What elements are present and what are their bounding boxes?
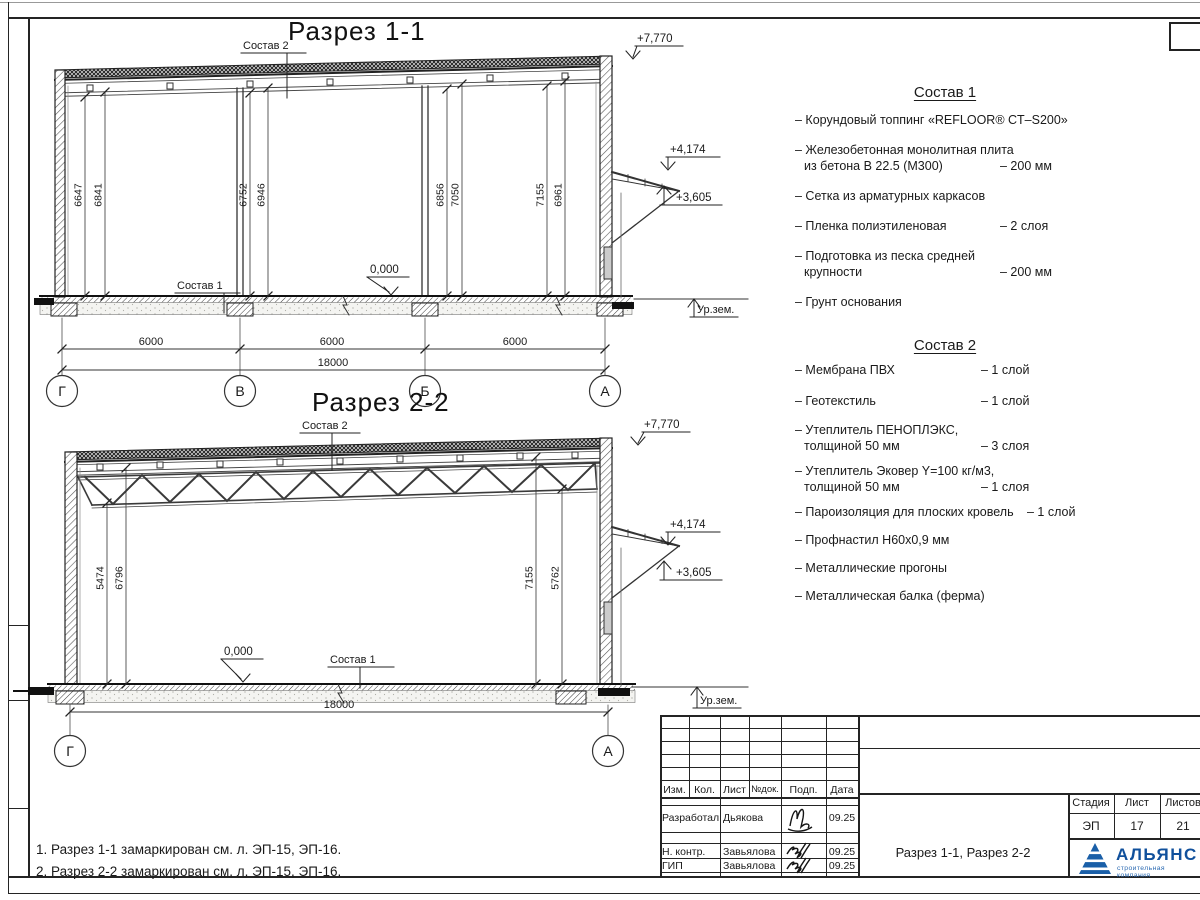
list-item: – Подготовка из песка средней крупности … [795, 248, 1100, 280]
list-item: – Пароизоляция для плоских кровель – 1 с… [795, 504, 1100, 520]
item-text: – Металлические прогоны [795, 561, 947, 575]
sostav1-heading: Состав 1 [795, 84, 1095, 101]
note-line: 1. Разрез 1-1 замаркирован см. л. ЭП-15,… [36, 839, 341, 861]
tb-doc-title: Разрез 1-1, Разрез 2-2 [860, 845, 1066, 860]
tb-col-data: Дата [826, 784, 858, 796]
item-qty: – 3 слоя [981, 438, 1029, 454]
wall-left [65, 452, 77, 684]
elevation-label: +4,174 [670, 519, 706, 531]
section-2-2: 5474 6796 7155 5762 18000 Г А +7,770 +4,… [14, 419, 748, 767]
item-text: – Грунт основания [795, 295, 902, 309]
item-text: толщиной 50 мм [804, 439, 900, 453]
tb-col-kol: Кол. [689, 784, 720, 796]
dim-label: 6000 [320, 336, 344, 348]
elevation-label: +3,605 [676, 567, 712, 579]
item-text: – Железобетонная монолитная плита [795, 143, 1014, 157]
tb-col-doc: №док. [749, 784, 781, 795]
tb-role: Н. контр. [662, 846, 705, 858]
drawing-sheet: { "s1": { "title": "Разрез 1-1", "labels… [0, 0, 1200, 900]
dim-label: 6647 [73, 183, 85, 207]
tb-date: 09.25 [826, 860, 858, 872]
ground-level-label: Ур.зем. [700, 695, 737, 707]
axis-label: В [235, 383, 244, 399]
signature [784, 804, 824, 832]
dim-label: 6796 [114, 566, 126, 590]
dim-label: 6000 [139, 336, 163, 348]
dim-label: 6841 [93, 183, 105, 207]
axis-label: Г [66, 743, 74, 759]
list-item: – Мембрана ПВХ – 1 слой [795, 362, 1100, 378]
item-text: толщиной 50 мм [804, 480, 900, 494]
note-line: 2. Разрез 2-2 замаркирован см. л. ЭП-15,… [36, 861, 341, 883]
tb-col-izm: Изм. [660, 784, 689, 796]
elevation-label: +7,770 [637, 33, 673, 45]
notes-block: 1. Разрез 1-1 замаркирован см. л. ЭП-15,… [36, 839, 341, 882]
list-item: – Металлическая балка (ферма) [795, 588, 1100, 604]
tb-sheets-value: 21 [1160, 819, 1200, 833]
tb-role: Разработал [662, 812, 719, 824]
axis-bubbles: Г А [55, 736, 624, 767]
item-text: – Утеплитель ПЕНОПЛЭКС, [795, 423, 958, 437]
dim-label: 18000 [318, 357, 349, 369]
elevation-label: +7,770 [644, 419, 680, 431]
signature [784, 857, 824, 874]
item-text: – Пленка полиэтиленовая [795, 219, 947, 233]
item-text: – Мембрана ПВХ [795, 363, 895, 377]
tb-sheet-value: 17 [1114, 819, 1160, 833]
list-item: – Пленка полиэтиленовая – 2 слоя [795, 218, 1100, 234]
item-text: – Металлическая балка (ферма) [795, 589, 985, 603]
list-item: – Железобетонная монолитная плита из бет… [795, 142, 1100, 174]
ground-level-label: Ур.зем. [697, 304, 734, 316]
elevation-label: +4,174 [670, 144, 706, 156]
item-text: из бетона В 22.5 (М300) [804, 159, 943, 173]
item-text: – Корундовый топпинг «REFLOOR® CT–S200» [795, 113, 1068, 127]
dim-label: 6000 [503, 336, 527, 348]
company-logo-text: АЛЬЯНС [1116, 845, 1198, 865]
list-item: – Корундовый топпинг «REFLOOR® CT–S200» [795, 112, 1100, 128]
item-text: – Подготовка из песка средней [795, 249, 975, 263]
section-1-title: Разрез 1-1 [288, 16, 426, 47]
tb-stage-value: ЭП [1068, 819, 1114, 833]
dim-label: 6946 [256, 183, 268, 207]
canopy [604, 527, 679, 686]
dim-label: 6856 [435, 183, 447, 207]
tb-role: ГИП [662, 860, 683, 872]
wall-left [55, 70, 65, 297]
dim-ticks [103, 453, 566, 688]
axis-label: А [600, 383, 610, 399]
item-qty: – 1 слой [981, 393, 1029, 409]
tb-name: Дьякова [723, 812, 763, 824]
dim-label: 7155 [535, 183, 547, 207]
item-text: – Геотекстиль [795, 394, 876, 408]
wall-right [600, 438, 612, 684]
item-qty: – 200 мм [1000, 158, 1052, 174]
elevation-label: 0,000 [224, 646, 253, 658]
tb-col-podp: Подп. [781, 784, 826, 796]
callout-label: Состав 2 [243, 40, 289, 52]
tb-name: Завьялова [723, 860, 775, 872]
dim-label: 5474 [95, 566, 107, 590]
list-item: – Сетка из арматурных каркасов [795, 188, 1100, 204]
list-item: – Металлические прогоны [795, 560, 1100, 576]
tb-date: 09.25 [826, 812, 858, 824]
tb-sheet-label: Лист [1114, 797, 1160, 809]
callout-label: Состав 1 [177, 280, 223, 292]
tb-sheets-label: Листов [1160, 797, 1200, 809]
section-2-title: Разрез 2-2 [312, 387, 450, 418]
tb-date: 09.25 [826, 846, 858, 858]
elevation-label: +3,605 [676, 192, 712, 204]
list-item: – Грунт основания [795, 294, 1100, 310]
item-text: – Профнастил Н60х0,9 мм [795, 533, 949, 547]
company-logo-icon [1078, 842, 1112, 875]
item-qty: – 1 слой [1027, 504, 1075, 520]
list-item: – Утеплитель ПЕНОПЛЭКС, толщиной 50 мм –… [795, 422, 1100, 454]
company-logo-subtext: строительная компания [1117, 865, 1200, 879]
elevation-marks [221, 432, 741, 708]
dim-label: 5762 [550, 566, 562, 590]
item-text: – Утеплитель Эковер Y=100 кг/м3, [795, 464, 994, 478]
item-qty: – 1 слой [981, 362, 1029, 378]
item-qty: – 2 слоя [1000, 218, 1048, 234]
item-qty: – 200 мм [1000, 264, 1052, 280]
tb-col-list: Лист [720, 784, 749, 796]
sostav2-heading: Состав 2 [795, 337, 1095, 354]
callout-label: Состав 1 [330, 654, 376, 666]
list-item: – Профнастил Н60х0,9 мм [795, 532, 1100, 548]
dim-label: 18000 [324, 699, 355, 711]
axis-label: Г [58, 383, 66, 399]
dim-label: 6961 [553, 183, 565, 207]
callout-label: Состав 2 [302, 420, 348, 432]
dim-label: 6752 [238, 183, 250, 207]
elevation-label: 0,000 [370, 264, 399, 276]
axis-label: А [603, 743, 613, 759]
item-qty: – 1 слоя [981, 479, 1029, 495]
vertical-dims [85, 81, 565, 296]
list-item: – Утеплитель Эковер Y=100 кг/м3, толщино… [795, 463, 1100, 495]
item-text: – Пароизоляция для плоских кровель [795, 505, 1014, 519]
tb-stage-label: Стадия [1068, 797, 1114, 809]
dim-ticks [81, 77, 569, 300]
section-1-1: 6647 6841 6752 6946 6856 7050 7155 6961 … [34, 33, 748, 407]
item-text: – Сетка из арматурных каркасов [795, 189, 985, 203]
dim-label: 7155 [524, 566, 536, 590]
list-item: – Геотекстиль – 1 слой [795, 393, 1100, 409]
item-text: крупности [804, 265, 862, 279]
tb-name: Завьялова [723, 846, 775, 858]
dim-label: 7050 [450, 183, 462, 207]
